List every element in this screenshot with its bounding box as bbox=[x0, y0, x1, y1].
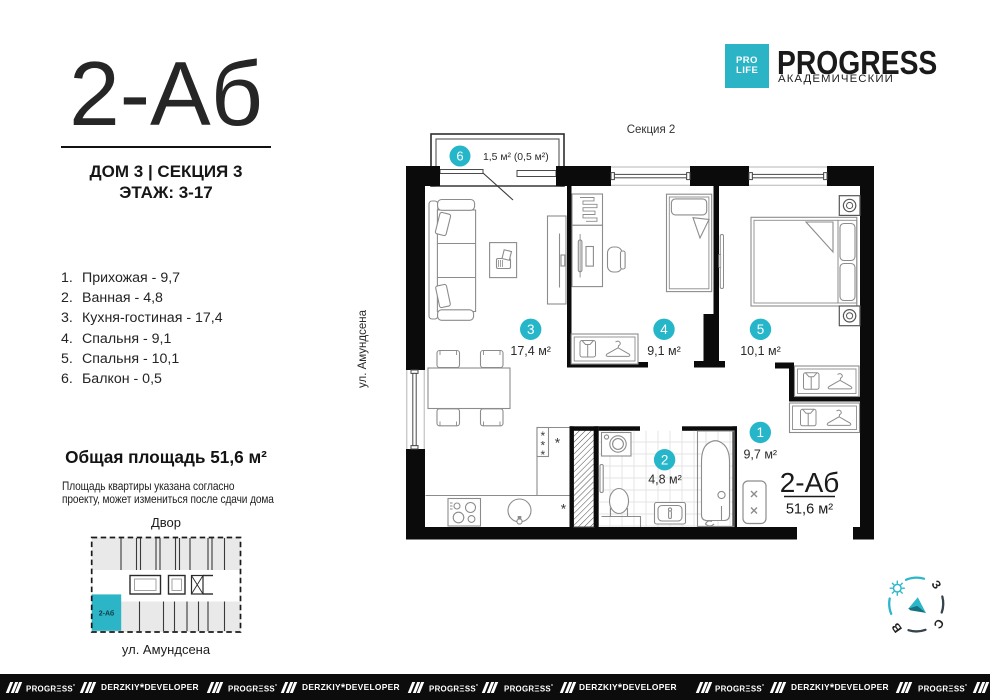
svg-text:С: С bbox=[930, 616, 947, 631]
svg-text:*: * bbox=[540, 448, 545, 462]
svg-text:1,5 м² (0,5 м²): 1,5 м² (0,5 м²) bbox=[483, 152, 549, 163]
svg-text:2-Аб: 2-Аб bbox=[99, 610, 115, 618]
svg-text:1: 1 bbox=[757, 425, 765, 440]
svg-text:6: 6 bbox=[456, 149, 463, 164]
svg-text:2: 2 bbox=[661, 452, 669, 467]
svg-text:В: В bbox=[888, 620, 905, 635]
svg-text:Секция 2: Секция 2 bbox=[627, 124, 676, 136]
svg-text:З: З bbox=[928, 578, 944, 592]
svg-text:ул. Амундсена: ул. Амундсена bbox=[357, 309, 369, 388]
svg-text:3: 3 bbox=[527, 322, 535, 337]
svg-text:4,8 м²: 4,8 м² bbox=[648, 473, 682, 487]
svg-text:4: 4 bbox=[660, 322, 668, 337]
svg-text:*: * bbox=[555, 435, 561, 451]
svg-text:5: 5 bbox=[757, 322, 765, 337]
svg-text:51,6 м²: 51,6 м² bbox=[786, 502, 833, 518]
svg-text:9,7 м²: 9,7 м² bbox=[743, 448, 777, 462]
svg-text:*: * bbox=[561, 501, 567, 517]
svg-text:2-Аб: 2-Аб bbox=[780, 467, 840, 498]
svg-text:10,1 м²: 10,1 м² bbox=[740, 344, 781, 358]
svg-text:9,1 м²: 9,1 м² bbox=[647, 344, 681, 358]
svg-text:17,4 м²: 17,4 м² bbox=[510, 344, 551, 358]
